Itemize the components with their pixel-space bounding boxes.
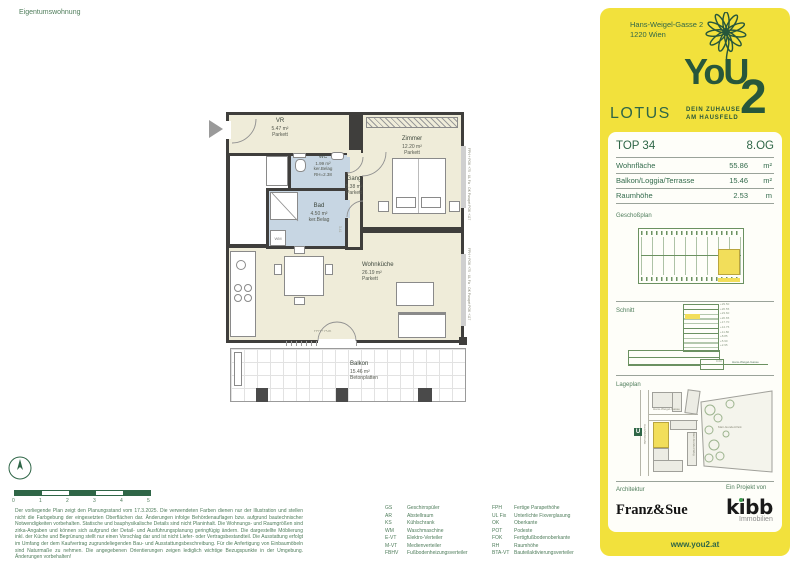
document-page: Eigentumswohnung: [0, 0, 800, 566]
level-label: +20.65: [720, 317, 729, 320]
balcony-pillar: [336, 388, 348, 402]
section-label-geschossplan: Geschoßplan: [616, 213, 652, 219]
architecture-label: Architektur: [616, 487, 645, 493]
park-area: [700, 390, 774, 474]
divider: [616, 375, 774, 376]
label-wohnkueche: Wohnküche 26.19 m² Parkett: [362, 262, 422, 283]
section-label-schnitt: Schnitt: [616, 308, 634, 314]
legend-row: GSGeschirrspüler: [385, 505, 468, 513]
unit-number: TOP 34: [616, 140, 655, 152]
legend-row: RHRaumhöhe: [492, 543, 574, 551]
scale-label: 0: [12, 498, 15, 504]
label-bad: Bad 4.50 m² ker.Belag: [296, 203, 342, 224]
room-floor: Parkett: [334, 190, 374, 197]
level-label: +23.60: [720, 312, 729, 315]
legend-row: OKOberkante: [492, 520, 574, 528]
divider: [616, 301, 774, 302]
scale-label: 3: [93, 498, 96, 504]
architect-logo: Franz&Sue: [616, 502, 688, 519]
road: [648, 390, 649, 476]
dimension-annotation: 3.41: [338, 226, 341, 232]
scale-label: 4: [120, 498, 123, 504]
section-label-lageplan: Lageplan: [616, 382, 641, 388]
label-vr: VR 5.47 m² Parkett: [245, 118, 315, 139]
tagline-line2: AM HAUSFELD: [686, 114, 741, 122]
diagram-detail: [641, 231, 741, 235]
fact-unit: m²: [763, 161, 772, 170]
room-name: Zimmer: [382, 136, 442, 144]
scale-label: 2: [66, 498, 69, 504]
section-tower: [683, 304, 719, 352]
address-line2: 1220 Wien: [630, 30, 703, 40]
room-floor: ker.Belag: [296, 217, 342, 224]
room-name: Wohnküche: [362, 262, 422, 270]
door-annotation: FPH + POK: [314, 330, 331, 333]
street-label: Hans-Weigel-Gasse: [732, 361, 759, 364]
scale-label: 5: [147, 498, 150, 504]
legend-row: POTPodeste: [492, 528, 574, 536]
level-label: +26.55: [720, 308, 729, 311]
fact-label: Raumhöhe: [616, 191, 653, 200]
room-floor: Betonplatten: [350, 375, 410, 382]
level-label: +29.50: [720, 303, 729, 306]
window-annotation: FPH + POK +75 · UL Fix · OK Parapet POK …: [467, 248, 470, 320]
legend-right: FPHFertige Parapethöhe UL FixUnterlichte…: [492, 505, 574, 558]
balcony-pillar: [256, 388, 268, 402]
legend-row: KSKühlschrank: [385, 520, 468, 528]
map-building: [653, 460, 683, 472]
label-wc: WC 1.99 m² ker.Belag RH=2.38: [300, 154, 346, 178]
divider: [616, 157, 774, 158]
park-label: Mari-Gundel-Park: [718, 426, 742, 429]
unit-floor: 8.OG: [747, 140, 774, 152]
legend-row: E-VTElektro-Verteiler: [385, 535, 468, 543]
level-label: +2.95: [720, 344, 728, 347]
ground-line: [628, 364, 768, 365]
disclaimer-text: Der vorliegende Plan zeigt den Planungss…: [15, 508, 303, 561]
room-name: Balkon: [350, 361, 410, 369]
legend-row: WMWaschmaschine: [385, 528, 468, 536]
website-link[interactable]: www.you2.at: [600, 540, 790, 549]
level-label: +5.90: [720, 340, 728, 343]
address-line1: Hans-Weigel-Gasse 2: [630, 20, 703, 30]
base-level-label: 0.00: [716, 360, 722, 363]
room-name: Gang: [334, 176, 374, 184]
room-floor: Parkett: [362, 276, 422, 283]
label-zimmer: Zimmer 12.20 m² Parkett: [382, 136, 442, 157]
level-label: +8.85: [720, 335, 728, 338]
fact-unit: m: [766, 191, 772, 200]
logo-you: YoU: [684, 54, 747, 90]
legend-row: M-VTMedienverteiler: [385, 543, 468, 551]
legend-row: FBHVFußbodenheizungsverteiler: [385, 550, 468, 558]
highlighted-balcony: [718, 278, 740, 282]
floor-plan: WM: [0, 0, 500, 430]
street-label-right: Mari-Gundel-Weg: [692, 432, 695, 456]
road: [648, 414, 698, 415]
level-label: +11.80: [720, 331, 729, 334]
map-building: [684, 389, 700, 415]
divider: [616, 203, 774, 204]
divider: [616, 173, 774, 174]
unit-card: TOP 34 8.OG Wohnfläche 55.86 m² Balkon/L…: [608, 132, 782, 532]
scale-bar: [14, 490, 151, 496]
legend-row: ARAbstellraum: [385, 513, 468, 521]
legend-row: BTA-VTBauteilaktivierungsverteiler: [492, 550, 574, 558]
street-label-top: Hans-Weigel-Gasse: [653, 408, 680, 411]
room-name: Bad: [296, 203, 342, 211]
window-annotation: FPH + POK +75 · UL Fix · OK Parapet POK …: [467, 148, 470, 220]
legend-row: UL FixUnterlichte Fixverglasung: [492, 513, 574, 521]
room-name: VR: [245, 118, 315, 126]
floor-overview-diagram: [638, 228, 744, 284]
tagline-line1: DEIN ZUHAUSE: [686, 106, 741, 114]
north-compass-icon: [8, 456, 32, 485]
legend-row: FPHFertige Parapethöhe: [492, 505, 574, 513]
fact-unit: m²: [763, 176, 772, 185]
level-label: +17.70: [720, 321, 729, 324]
developer-logo-sub: Immobilien: [739, 516, 773, 523]
highlighted-floor: [685, 314, 700, 319]
map-building: [670, 420, 697, 430]
fact-label: Balkon/Loggia/Terrasse: [616, 176, 694, 185]
legend-row: FOKFertigfußbodenoberkante: [492, 535, 574, 543]
divider: [616, 188, 774, 189]
fact-value: 15.46: [729, 176, 748, 185]
developer-logo-dot: [739, 498, 743, 502]
room-floor: Parkett: [382, 150, 442, 157]
fact-label: Wohnfläche: [616, 161, 655, 170]
site-map: U Hausfeldstraße Hans-Weigel-Gasse Mari-…: [626, 390, 776, 476]
scale-label: 1: [39, 498, 42, 504]
logo-tagline: DEIN ZUHAUSE AM HAUSFELD: [686, 106, 741, 122]
fact-value: 55.86: [729, 161, 748, 170]
legend-left: GSGeschirrspüler ARAbstellraum KSKühlsch…: [385, 505, 468, 558]
balcony-pillar: [418, 388, 432, 402]
label-gang: Gang 5.38 m² Parkett: [334, 176, 374, 197]
label-balkon: Balkon 15.46 m² Betonplatten: [350, 361, 410, 382]
project-by-label: Ein Projekt von: [726, 485, 766, 491]
divider: [616, 481, 774, 482]
logo-two: 2: [740, 74, 767, 122]
info-sidebar: Hans-Weigel-Gasse 2 1220 Wien YoU: [600, 8, 790, 556]
project-address: Hans-Weigel-Gasse 2 1220 Wien: [630, 20, 703, 40]
map-building-highlighted: [653, 422, 669, 448]
room-floor: Parkett: [245, 132, 315, 139]
planter: [234, 352, 242, 386]
level-label: +14.75: [720, 326, 729, 329]
street-label-left: Hausfeldstraße: [643, 424, 646, 444]
metro-marker: U: [634, 428, 642, 436]
fact-value: 2.53: [733, 191, 748, 200]
project-name: LOTUS: [610, 105, 671, 123]
highlighted-unit: [718, 249, 740, 275]
